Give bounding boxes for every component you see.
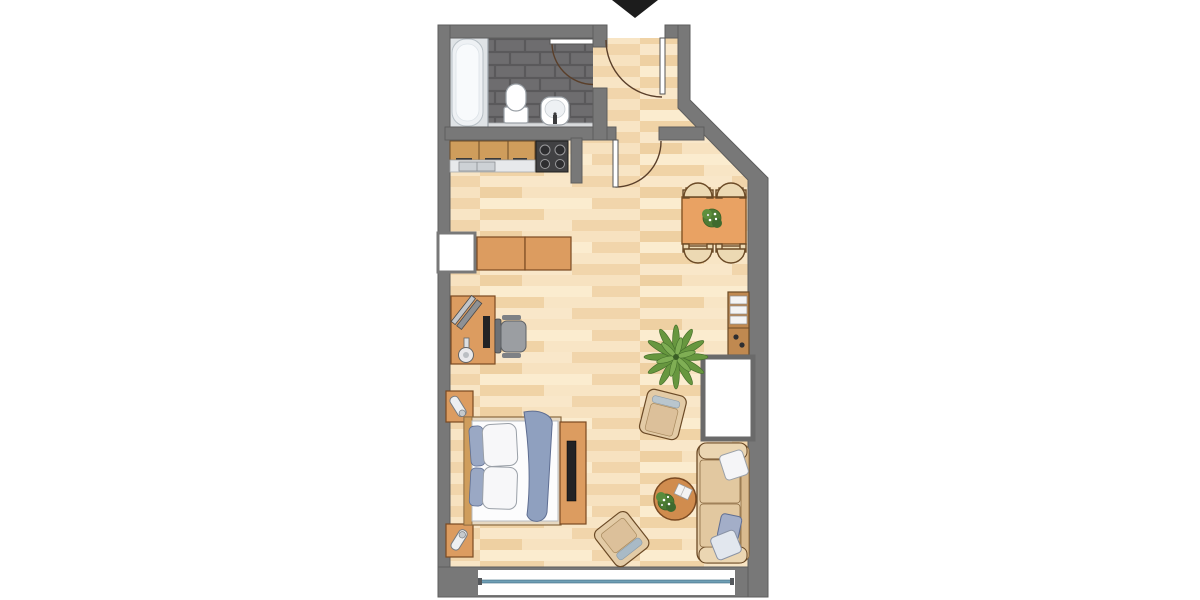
kitchen-cabinet-3	[508, 141, 535, 160]
wardrobe	[703, 357, 753, 439]
entrance-arrow-icon	[612, 0, 658, 18]
shelf-unit	[728, 292, 749, 355]
window-glass-line	[481, 580, 732, 583]
coffee-table	[654, 478, 696, 520]
kitchen-cabinet-1	[450, 141, 479, 160]
wall-bathroom-bottom	[445, 127, 607, 140]
sideboard	[477, 237, 571, 270]
bathtub	[447, 34, 488, 131]
kitchen-cabinet-2	[479, 141, 508, 160]
floor-plan-canvas	[0, 0, 1200, 600]
media-cabinet	[560, 422, 586, 524]
wall-left	[438, 25, 450, 567]
bathroom-door-leaf	[550, 39, 593, 44]
floor-plan-svg	[0, 0, 1200, 600]
wall-hall-right	[659, 127, 704, 140]
interior-door-leaf	[613, 140, 618, 187]
office-chair	[495, 315, 526, 358]
wall-kitchen-stub	[571, 138, 582, 183]
stove	[536, 141, 568, 172]
toilet	[504, 84, 528, 123]
monitor	[483, 316, 490, 348]
tv	[567, 441, 576, 501]
bathroom-sink	[541, 97, 569, 125]
left-wall-window	[438, 233, 475, 272]
sofa	[697, 443, 749, 563]
wall-hall-left	[607, 127, 616, 140]
kitchen-sink	[459, 162, 495, 171]
wall-top-left	[438, 25, 598, 38]
wall-bathroom-right-lower	[593, 88, 607, 140]
bathroom	[447, 34, 593, 133]
kitchen	[450, 141, 568, 172]
wall-bathroom-right-upper	[593, 25, 607, 47]
balcony-window	[478, 570, 735, 595]
entry-door-leaf	[660, 38, 665, 94]
